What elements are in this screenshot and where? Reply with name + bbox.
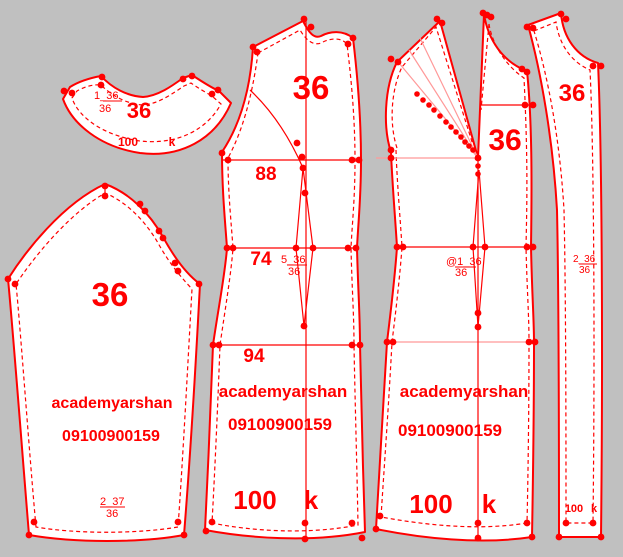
back-waist-measurement: 74 bbox=[250, 249, 272, 270]
piece-front-bodice[interactable]: 36 @1_36 36 academyarshan 09100900159 10… bbox=[373, 10, 539, 542]
collar-size-label: 36 bbox=[127, 98, 151, 123]
piece-collar[interactable]: 1_36 36 36 100 k bbox=[61, 73, 231, 154]
sleeve-outline[interactable] bbox=[8, 184, 200, 541]
front-number-label: 09100900159 bbox=[398, 421, 502, 440]
back-number-label: 09100900159 bbox=[228, 415, 332, 434]
piece-sleeve[interactable]: 36 academyarshan 09100900159 2_37 36 bbox=[5, 183, 203, 541]
facing-grain-label: k bbox=[591, 503, 598, 515]
back-piece-code-den: 36 bbox=[288, 266, 300, 278]
back-name-label: academyarshan bbox=[219, 382, 348, 401]
sleeve-number-label: 09100900159 bbox=[62, 428, 160, 445]
collar-piece-code: 1_36 bbox=[94, 90, 118, 102]
piece-back-bodice[interactable]: 36 88 74 94 5_36 36 academyarshan 091009… bbox=[203, 16, 366, 543]
front-name-label: academyarshan bbox=[400, 382, 529, 401]
front-piece-code-den: 36 bbox=[455, 267, 467, 279]
back-piece-code: 5_36 bbox=[281, 254, 305, 266]
pattern-canvas[interactable]: 1_36 36 36 100 k 36 academyarshan 091009… bbox=[0, 0, 623, 557]
sleeve-piece-code-den: 36 bbox=[106, 508, 118, 520]
sleeve-piece-code: 2_37 bbox=[100, 496, 124, 508]
sleeve-name-label: academyarshan bbox=[52, 395, 173, 412]
collar-grain-label: k bbox=[169, 135, 176, 149]
facing-piece-code-den: 36 bbox=[579, 265, 591, 276]
facing-piece-code: 2_36 bbox=[573, 254, 596, 265]
pattern-drawing: 1_36 36 36 100 k 36 academyarshan 091009… bbox=[0, 0, 623, 557]
front-scale-label: 100 bbox=[409, 489, 452, 519]
front-size-label: 36 bbox=[488, 124, 521, 157]
back-hip-measurement: 94 bbox=[243, 346, 265, 367]
collar-scale-label: 100 bbox=[118, 135, 138, 149]
collar-piece-code-den: 36 bbox=[99, 103, 111, 115]
facing-scale-label: 100 bbox=[565, 503, 583, 515]
back-size-label: 36 bbox=[293, 69, 330, 106]
back-scale-label: 100 bbox=[233, 485, 276, 515]
facing-size-label: 36 bbox=[559, 80, 586, 107]
back-bust-measurement: 88 bbox=[255, 164, 276, 185]
piece-facing-strip[interactable]: 36 2_36 36 100 k bbox=[524, 11, 605, 541]
front-grain-label: k bbox=[482, 489, 497, 519]
sleeve-size-label: 36 bbox=[92, 276, 129, 313]
back-grain-label: k bbox=[304, 485, 319, 515]
